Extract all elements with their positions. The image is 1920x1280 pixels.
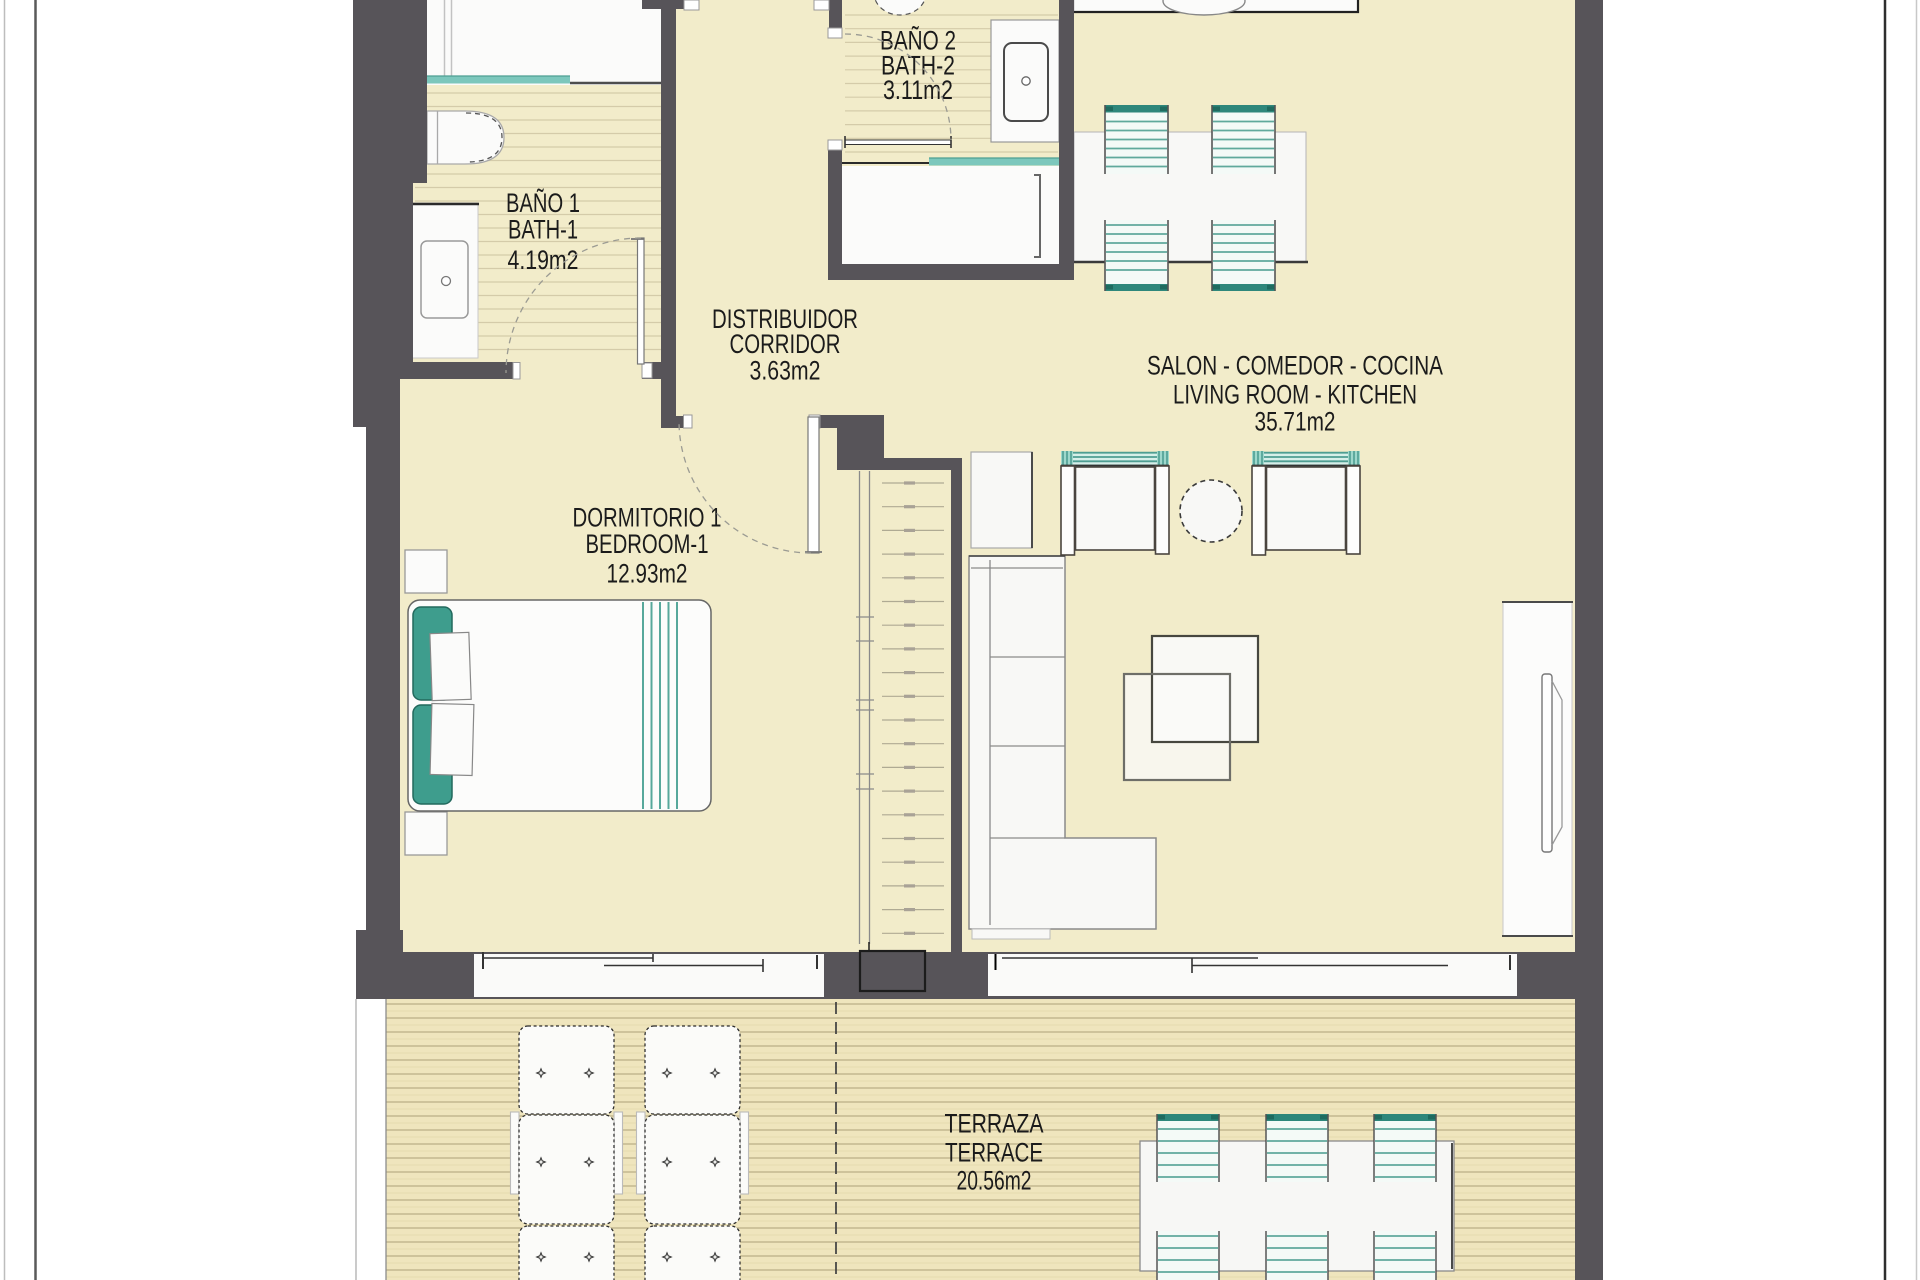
- svg-text:SALON - COMEDOR - COCINA: SALON - COMEDOR - COCINA: [1147, 351, 1443, 381]
- svg-text:20.56m2: 20.56m2: [957, 1166, 1032, 1196]
- svg-text:BAÑO 1: BAÑO 1: [506, 187, 580, 218]
- svg-text:BATH-1: BATH-1: [508, 215, 578, 245]
- svg-text:TERRAZA: TERRAZA: [945, 1109, 1044, 1139]
- svg-text:BEDROOM-1: BEDROOM-1: [586, 529, 709, 559]
- svg-text:3.11m2: 3.11m2: [883, 75, 953, 105]
- svg-text:12.93m2: 12.93m2: [607, 559, 688, 589]
- svg-text:TERRACE: TERRACE: [945, 1138, 1043, 1168]
- svg-text:CORRIDOR: CORRIDOR: [730, 329, 841, 359]
- svg-text:3.63m2: 3.63m2: [750, 356, 821, 386]
- svg-text:LIVING ROOM - KITCHEN: LIVING ROOM - KITCHEN: [1173, 380, 1417, 410]
- svg-text:DORMITORIO 1: DORMITORIO 1: [573, 503, 722, 533]
- svg-text:35.71m2: 35.71m2: [1255, 407, 1336, 437]
